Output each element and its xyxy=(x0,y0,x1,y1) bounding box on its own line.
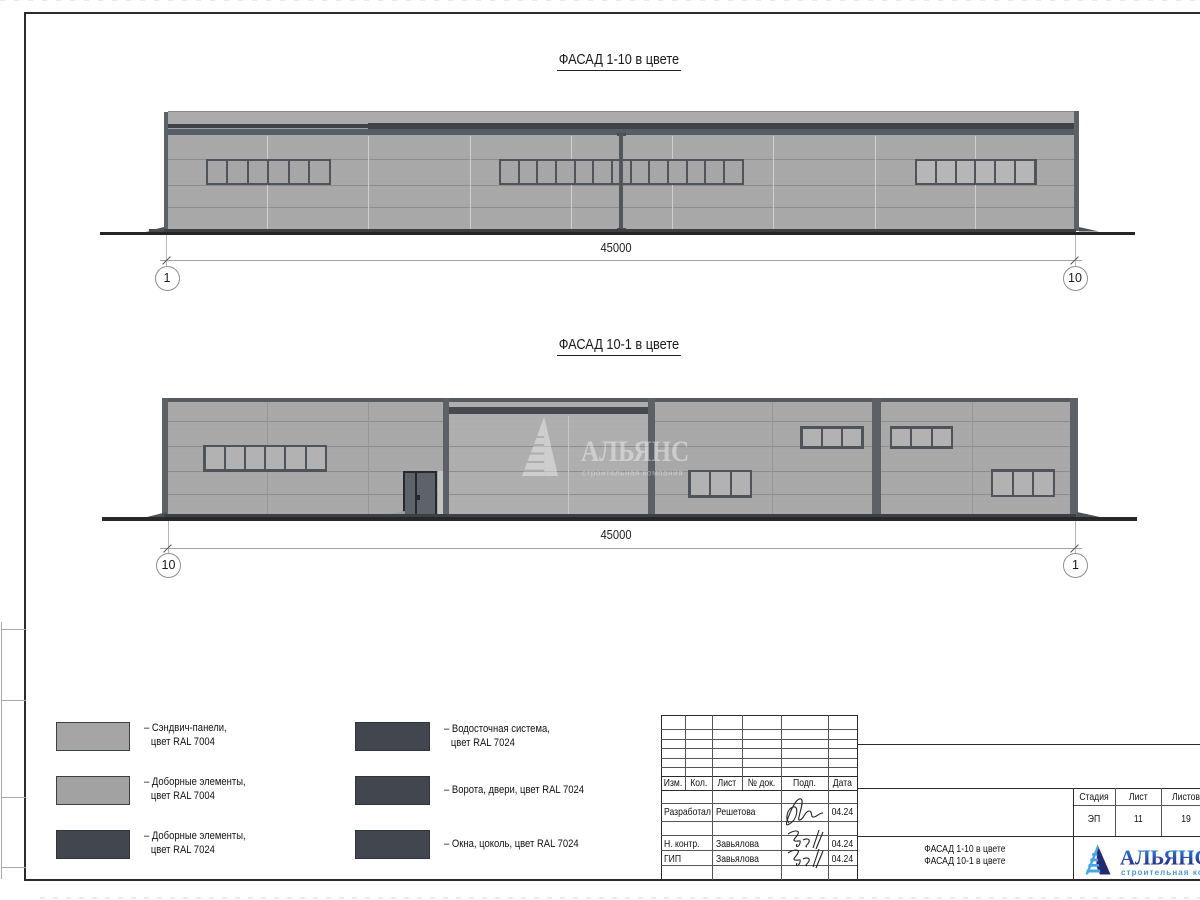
svg-text:АЛЬЯНС: АЛЬЯНС xyxy=(1120,845,1200,869)
svg-text:АЛЬЯНС: АЛЬЯНС xyxy=(581,434,689,468)
svg-text:строительная компания: строительная компания xyxy=(1121,868,1200,877)
svg-text:строительная компания: строительная компания xyxy=(582,469,683,478)
